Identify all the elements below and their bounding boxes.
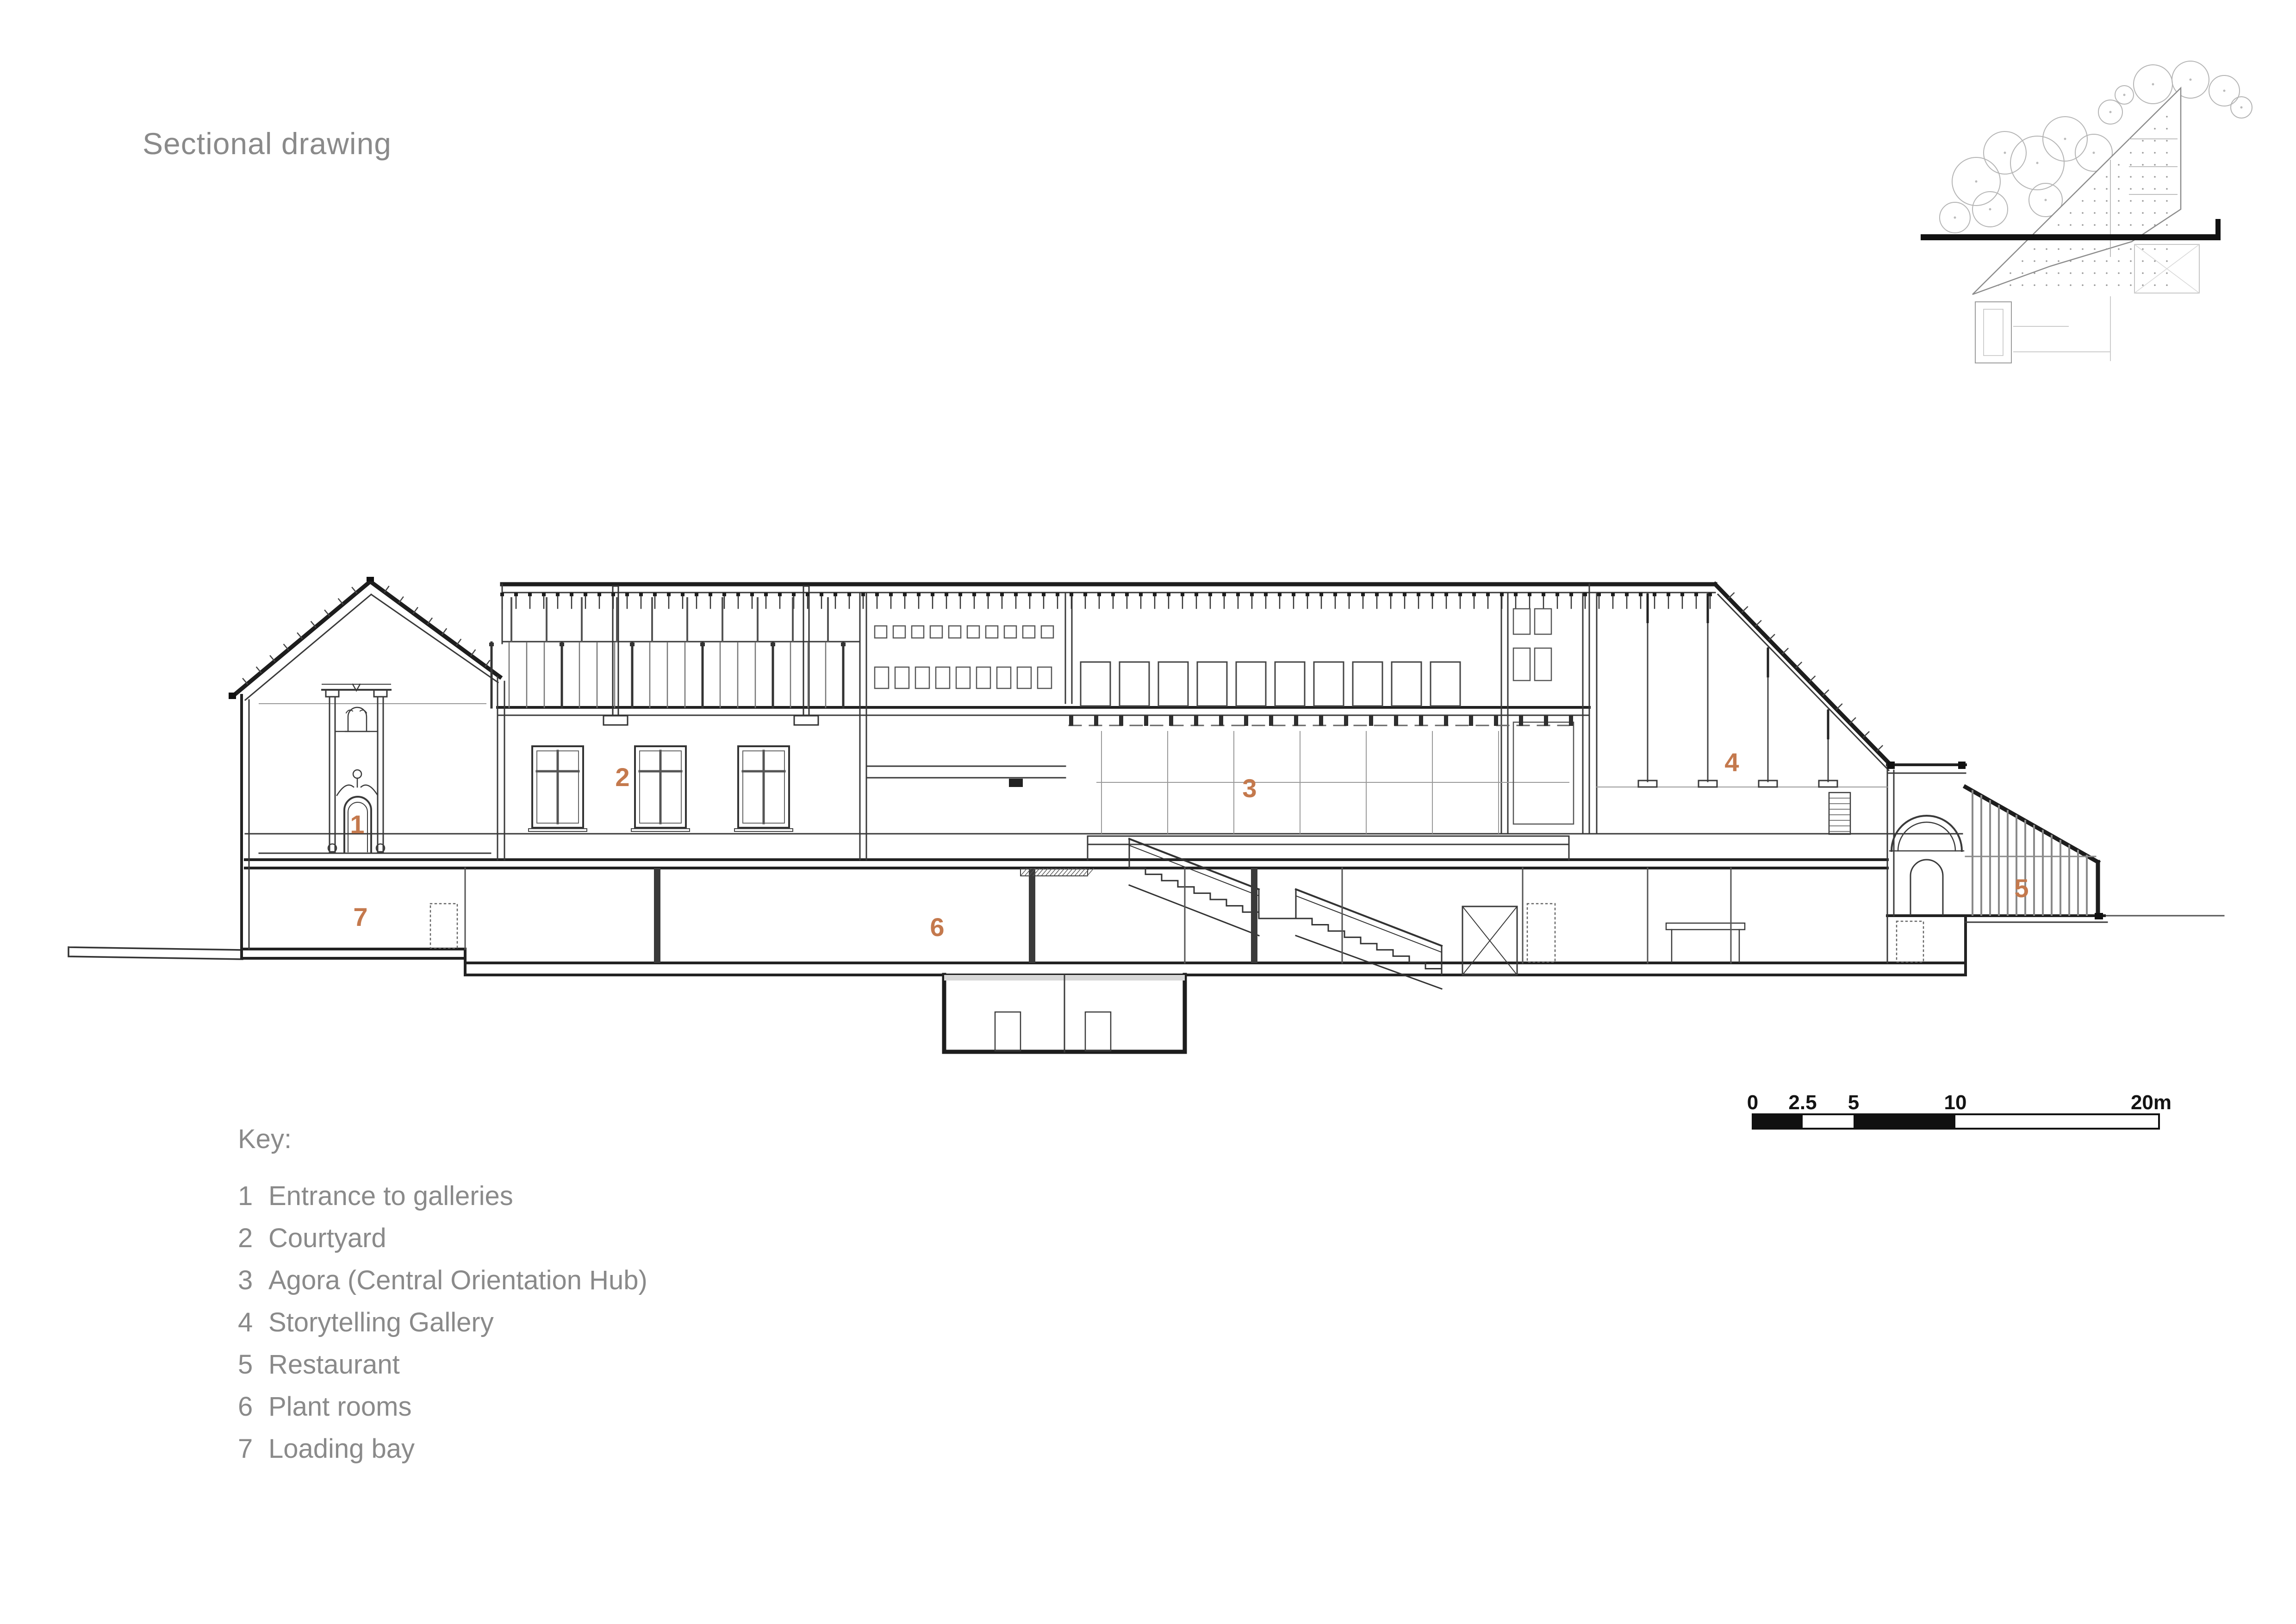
clerestory-row-small	[875, 626, 1053, 638]
section-cut-line	[1921, 234, 2221, 240]
pit-door-1	[995, 1012, 1020, 1051]
key-item: 5Restaurant	[238, 1349, 647, 1391]
ridge-cap	[367, 577, 374, 581]
key-item: 1Entrance to galleries	[238, 1181, 647, 1223]
counter	[1666, 923, 1745, 930]
scale-tick-0: 0	[1747, 1091, 1758, 1114]
section-label-plant-rooms: 6	[930, 912, 944, 942]
arched-niche	[1890, 816, 1964, 915]
hatch-marks	[1020, 798, 1849, 876]
key-item-label: Agora (Central Orientation Hub)	[268, 1265, 647, 1296]
key-item-number: 5	[238, 1349, 259, 1380]
courtyard-mullion-studs	[489, 643, 846, 707]
scale-tick-3: 10	[1944, 1091, 1967, 1114]
key-legend: Key: 1Entrance to galleries 2Courtyard 3…	[238, 1124, 647, 1475]
eave-block	[229, 693, 236, 699]
site-lower-wing-inner	[1984, 309, 2003, 356]
key-item-label: Plant rooms	[268, 1391, 411, 1422]
scale-tick-2: 5	[1848, 1091, 1859, 1114]
key-item-number: 2	[238, 1223, 259, 1254]
key-item-number: 1	[238, 1181, 259, 1212]
agora-clerestory-panes	[1081, 662, 1460, 706]
basement-fittings	[995, 793, 1850, 1052]
ground-line-left	[68, 947, 243, 959]
section-label-courtyard: 2	[615, 762, 629, 792]
roof-battens	[500, 593, 1712, 608]
rooflight-dentils	[1069, 716, 1573, 726]
courtyard-windows	[529, 746, 793, 831]
key-item: 7Loading bay	[238, 1433, 647, 1475]
section-label-entrance: 1	[350, 810, 364, 839]
section-label-loading-bay: 7	[353, 902, 367, 931]
key-item-label: Storytelling Gallery	[268, 1307, 494, 1338]
section-label-restaurant: 5	[2014, 874, 2028, 903]
site-lower-wing	[1975, 302, 2011, 363]
section-label-storytelling-gallery: 4	[1724, 748, 1739, 777]
parapet-corner-block-right	[1958, 762, 1966, 769]
restaurant-glazing-mullions	[1972, 791, 2087, 915]
scale-bar-segment-black-2	[1854, 1114, 1955, 1129]
section-label-agora: 3	[1242, 774, 1257, 803]
key-item-number: 4	[238, 1307, 259, 1338]
key-heading: Key:	[238, 1124, 647, 1155]
scale-bar: 0 2.5 5 10 20m	[1747, 1091, 2172, 1129]
key-item-label: Courtyard	[268, 1223, 386, 1254]
scale-bar-outline	[1753, 1114, 2159, 1129]
key-item: 6Plant rooms	[238, 1391, 647, 1433]
key-item-number: 7	[238, 1433, 259, 1464]
scale-tick-1: 2.5	[1788, 1091, 1817, 1114]
key-item-number: 3	[238, 1265, 259, 1296]
key-item-label: Entrance to galleries	[268, 1181, 513, 1212]
key-item: 2Courtyard	[238, 1223, 647, 1265]
clerestory-row-tall	[875, 667, 1052, 688]
scale-bar-segment-black-1	[1753, 1114, 1803, 1129]
scale-tick-4: 20m	[2131, 1091, 2172, 1114]
key-item: 3Agora (Central Orientation Hub)	[238, 1265, 647, 1307]
walls-slabs-medium	[242, 695, 2104, 975]
section-cut-tick	[2215, 219, 2221, 240]
key-item-number: 6	[238, 1391, 259, 1422]
pit-door-2	[1085, 1012, 1111, 1051]
courtyard-roof-posts	[511, 598, 828, 641]
roof-outline-thick	[234, 581, 2098, 1052]
page-canvas: Sectional drawing	[0, 0, 2296, 1624]
key-item-label: Restaurant	[268, 1349, 400, 1380]
building-section	[68, 577, 2224, 1052]
key-item: 4Storytelling Gallery	[238, 1307, 647, 1349]
site-plan-thumbnail	[1921, 61, 2252, 363]
parapet-corner-block-left	[1887, 762, 1895, 769]
site-building-roof	[1972, 88, 2181, 294]
key-item-label: Loading bay	[268, 1433, 415, 1464]
restaurant-base-block	[2095, 913, 2103, 919]
basement-partitions	[430, 868, 1923, 963]
mezzanine-bracket	[1009, 779, 1023, 787]
grand-staircase	[1129, 839, 1442, 989]
ladder	[1829, 793, 1850, 834]
